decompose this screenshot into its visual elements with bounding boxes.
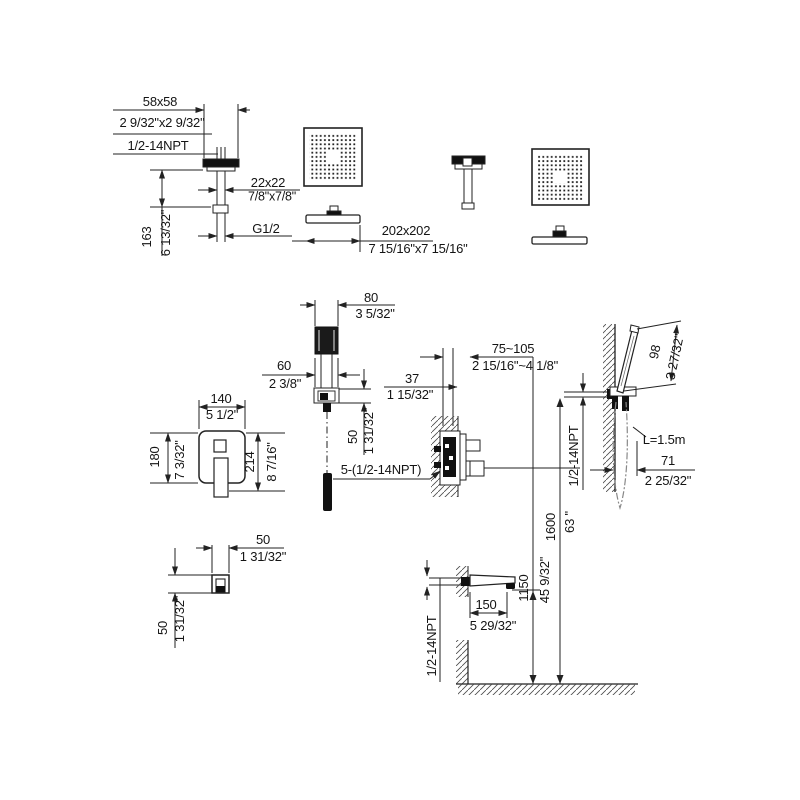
dim-ceiling-flange-mm: 58x58 [143, 95, 177, 109]
dim-arm-drop-mm: 163 [140, 226, 154, 247]
dim-elbow-height-in: 1 31/32" [173, 596, 187, 642]
dim-spout-height-mm: 1150 [517, 574, 531, 601]
dim-head-size-in: 7 15/16"x7 15/16" [368, 242, 467, 256]
dim-trim-total-mm: 214 [243, 451, 257, 472]
dim-elbow-width-in: 1 31/32" [240, 550, 286, 564]
dim-outlet-width-in: 3 5/32" [355, 307, 394, 321]
dim-arm-pipe-in: 7/8"x7/8" [248, 190, 296, 203]
dim-valve-height-in: 63 " [563, 511, 577, 533]
dim-outlet-width-mm: 80 [364, 291, 378, 305]
dim-outlet-depth-mm: 50 [346, 430, 360, 444]
label-ceiling-arm-thread: 1/2-14NPT [127, 139, 188, 153]
label-spout-thread: 1/2-14NPT [425, 615, 439, 676]
shower-head-face-view-right [532, 149, 589, 205]
dim-hand-shower-head-mm: 98 [647, 344, 663, 361]
dim-arm-pipe-mm: 22x22 [251, 176, 285, 190]
dim-spout-length-mm: 150 [475, 598, 496, 612]
dim-hand-shower-offset-in: 2 25/32" [645, 474, 691, 488]
dim-spout-height-in: 45 9/32" [538, 557, 552, 603]
dim-outlet-body-in: 2 3/8" [269, 377, 301, 391]
dim-trim-width-mm: 140 [210, 392, 231, 406]
label-hose-length: L=1.5m [643, 433, 686, 447]
shower-head-face-view-left [304, 128, 362, 186]
dim-trim-height-mm: 180 [148, 446, 162, 467]
dim-valve-depth-range-mm: 75~105 [492, 342, 535, 356]
dim-elbow-height-mm: 50 [156, 621, 170, 635]
label-arm-outlet-thread: G1/2 [252, 222, 279, 236]
dim-ceiling-flange-in: 2 9/32"x2 9/32" [119, 116, 204, 130]
dim-outlet-depth-in: 1 31/32" [362, 408, 376, 454]
dim-trim-total-in: 8 7/16" [265, 442, 279, 481]
dim-valve-height-mm: 1600 [544, 513, 558, 541]
dim-elbow-width-mm: 50 [256, 533, 270, 547]
label-hand-shower-thread: 1/2-14NPT [567, 425, 581, 486]
dim-outlet-body-mm: 60 [277, 359, 291, 373]
dim-valve-depth-range-in: 2 15/16"~4 1/8" [472, 359, 558, 373]
technical-drawing-page: 58x58 2 9/32"x2 9/32" 1/2-14NPT 22x22 7/… [0, 0, 800, 800]
dim-trim-width-in: 5 1/2" [206, 408, 238, 422]
dim-arm-drop-in: 6 13/32" [159, 210, 173, 256]
shower-head-side-view-right [532, 226, 587, 244]
dim-hand-shower-offset-mm: 71 [661, 454, 675, 468]
dim-outlet-offset-mm: 37 [405, 372, 419, 386]
dim-head-size-mm: 202x202 [382, 224, 430, 238]
dim-trim-height-in: 7 3/32" [173, 440, 187, 479]
dim-spout-length-in: 5 29/32" [470, 619, 516, 633]
dim-outlet-offset-in: 1 15/32" [387, 388, 433, 402]
label-valve-connections: 5-(1/2-14NPT) [341, 463, 421, 477]
ceiling-arm-front-view [452, 156, 485, 209]
